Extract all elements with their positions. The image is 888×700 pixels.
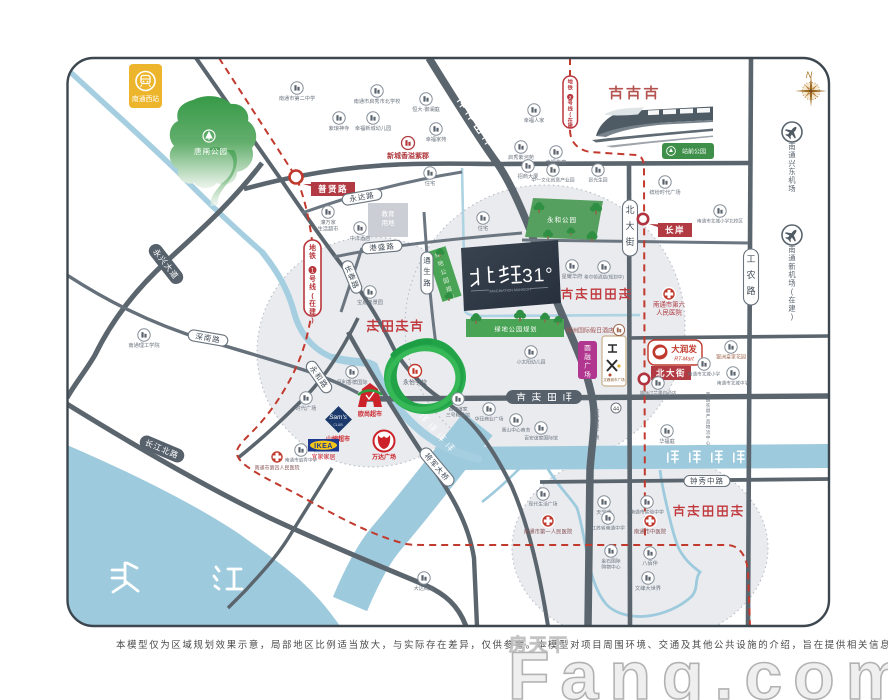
svg-text:): ) [791, 312, 793, 321]
svg-text:金石国际: 金石国际 [601, 558, 620, 565]
svg-text:八佰伴: 八佰伴 [642, 559, 658, 567]
svg-text:希尔顿酒店(规划中): 希尔顿酒店(规划中) [584, 273, 624, 280]
svg-text:宝嘉逸景园: 宝嘉逸景园 [357, 298, 383, 306]
svg-text:在: 在 [309, 299, 316, 308]
svg-text:长岸: 长岸 [665, 225, 685, 235]
svg-text:紫琅神寺: 紫琅神寺 [329, 124, 350, 132]
svg-text:幸福新城幼儿园: 幸福新城幼儿园 [355, 124, 391, 132]
svg-text:南通市第一人民医院: 南通市第一人民医院 [524, 528, 573, 536]
svg-text:号: 号 [568, 99, 573, 107]
svg-text:N: N [806, 70, 813, 80]
svg-text:通: 通 [423, 255, 431, 265]
svg-text:生: 生 [423, 266, 431, 276]
svg-text:时代广场: 时代广场 [296, 404, 317, 412]
svg-text:工: 工 [746, 254, 755, 264]
svg-text:北: 北 [625, 205, 634, 215]
svg-text:站前公园: 站前公园 [682, 148, 706, 156]
svg-text:华福庭: 华福庭 [659, 437, 675, 445]
svg-text:大达码头: 大达码头 [414, 584, 435, 592]
svg-text:保利香槟国际: 保利香槟国际 [336, 378, 367, 386]
svg-text:银洲皇家花园: 银洲皇家花园 [716, 354, 746, 361]
svg-text:万达广场: 万达广场 [371, 453, 396, 461]
svg-text:三号精品馆: 三号精品馆 [446, 412, 470, 419]
svg-text:永怡学校: 永怡学校 [403, 379, 427, 387]
svg-text:Sam's: Sam's [329, 414, 348, 421]
svg-text:地: 地 [309, 243, 316, 252]
svg-text:南通理工学院: 南通理工学院 [128, 341, 160, 349]
svg-text:百安谊家国际馆: 百安谊家国际馆 [524, 435, 558, 442]
svg-text:缤纷时代广场: 缤纷时代广场 [649, 188, 680, 196]
svg-text:文峰城市广场: 文峰城市广场 [603, 377, 625, 382]
svg-text:铁: 铁 [568, 83, 574, 91]
svg-text:31°: 31° [522, 265, 555, 288]
svg-text:线: 线 [309, 282, 316, 291]
svg-text:南通市第六: 南通市第六 [653, 300, 686, 309]
svg-text:用地: 用地 [382, 218, 396, 227]
svg-text:唐闸公园: 唐闸公园 [194, 146, 228, 156]
svg-text:北大街: 北大街 [656, 368, 686, 378]
svg-text:圆: 圆 [584, 344, 591, 352]
svg-text:中洋酒店: 中洋酒店 [350, 234, 371, 242]
svg-text:地: 地 [568, 78, 574, 86]
svg-text:44: 44 [613, 407, 619, 413]
svg-text:南通市启秀市北学校: 南通市启秀市北学校 [354, 97, 401, 105]
svg-text:绿地公园规划: 绿地公园规划 [494, 326, 537, 334]
svg-text:幸福人家: 幸福人家 [524, 116, 545, 124]
svg-text:星耀华府: 星耀华府 [562, 272, 583, 280]
svg-text:现代生活广场: 现代生活广场 [529, 501, 558, 508]
svg-text:生活超市: 生活超市 [318, 224, 339, 232]
svg-text:建: 建 [308, 307, 316, 316]
svg-text:南通市启秀中学: 南通市启秀中学 [285, 456, 318, 463]
svg-text:购物中心: 购物中心 [601, 564, 620, 571]
svg-text:场: 场 [584, 369, 591, 378]
svg-text:昂光生园: 昂光生园 [588, 177, 607, 184]
svg-text:在: 在 [568, 116, 573, 124]
svg-text:南通西站: 南通西站 [132, 94, 159, 103]
svg-text:南通市北城小学: 南通市北城小学 [688, 370, 721, 377]
svg-text:铁: 铁 [308, 251, 316, 260]
svg-text:恒大·御澜庭: 恒大·御澜庭 [412, 105, 440, 113]
svg-text:CLUB: CLUB [333, 423, 343, 427]
svg-text:教育: 教育 [382, 209, 396, 218]
svg-text:路: 路 [423, 278, 431, 288]
svg-text:建: 建 [568, 122, 574, 130]
svg-text:南通市第二中学: 南通市第二中学 [279, 94, 315, 102]
svg-text:场: 场 [788, 184, 795, 193]
svg-text:幸福家苑: 幸福家苑 [426, 135, 447, 143]
svg-text:人民医院: 人民医院 [656, 307, 682, 316]
svg-text:Fang.com: Fang.com [508, 638, 888, 700]
svg-text:欧尚超市: 欧尚超市 [358, 410, 382, 418]
svg-text:街: 街 [625, 236, 634, 247]
svg-text:): ) [311, 317, 313, 324]
svg-text:绿洲国际假日酒店: 绿洲国际假日酒店 [566, 327, 614, 335]
svg-text:广: 广 [584, 361, 591, 370]
svg-text:南通市中医院: 南通市中医院 [634, 528, 667, 536]
svg-text:号: 号 [309, 274, 316, 283]
svg-text:江苏省南通中学: 江苏省南通中学 [591, 525, 625, 532]
svg-text:大: 大 [625, 220, 634, 231]
svg-text:永和公园: 永和公园 [547, 215, 577, 224]
svg-text:心: 心 [706, 440, 711, 446]
svg-text:文峰大世界: 文峰大世界 [635, 584, 661, 592]
svg-text:线: 线 [568, 104, 574, 112]
svg-text:惠山中心商务: 惠山中心商务 [502, 427, 531, 434]
svg-text:2: 2 [569, 95, 572, 100]
svg-text:住宅: 住宅 [425, 179, 435, 187]
svg-text:南通市北城小学北校区: 南通市北城小学北校区 [697, 217, 743, 224]
svg-text:南通市实验中学: 南通市实验中学 [630, 509, 664, 516]
svg-text:南: 南 [706, 391, 711, 397]
svg-text:融: 融 [584, 352, 591, 361]
svg-text:钟秀中路: 钟秀中路 [690, 476, 724, 486]
svg-text:路: 路 [746, 285, 755, 296]
svg-text:华珏商业广场: 华珏商业广场 [475, 416, 504, 423]
svg-text:城际汀兰墨尔酒店: 城际汀兰墨尔酒店 [640, 389, 677, 396]
svg-text:RT-Mart: RT-Mart [674, 357, 694, 363]
svg-text:金: 金 [595, 407, 600, 413]
svg-text:普贤路: 普贤路 [318, 184, 348, 194]
svg-text:): ) [569, 130, 571, 136]
svg-text:IKEA: IKEA [314, 443, 333, 450]
svg-text:场: 场 [595, 434, 600, 441]
svg-text:农: 农 [746, 269, 755, 280]
svg-text:大润发: 大润发 [671, 344, 697, 354]
svg-text:住宅: 住宅 [478, 224, 488, 232]
svg-text:小太阳幼儿园: 小太阳幼儿园 [517, 359, 546, 366]
svg-text:中一文化创意产业园: 中一文化创意产业园 [531, 177, 574, 184]
svg-text:南通市第四人民医院: 南通市第四人民医院 [254, 465, 299, 472]
svg-text:百安谊家: 百安谊家 [448, 406, 467, 413]
svg-text:新城香溢紫郡: 新城香溢紫郡 [387, 151, 429, 160]
svg-text:濠万家: 濠万家 [320, 218, 336, 226]
svg-text:南通市北城中学: 南通市北城中学 [717, 379, 750, 386]
